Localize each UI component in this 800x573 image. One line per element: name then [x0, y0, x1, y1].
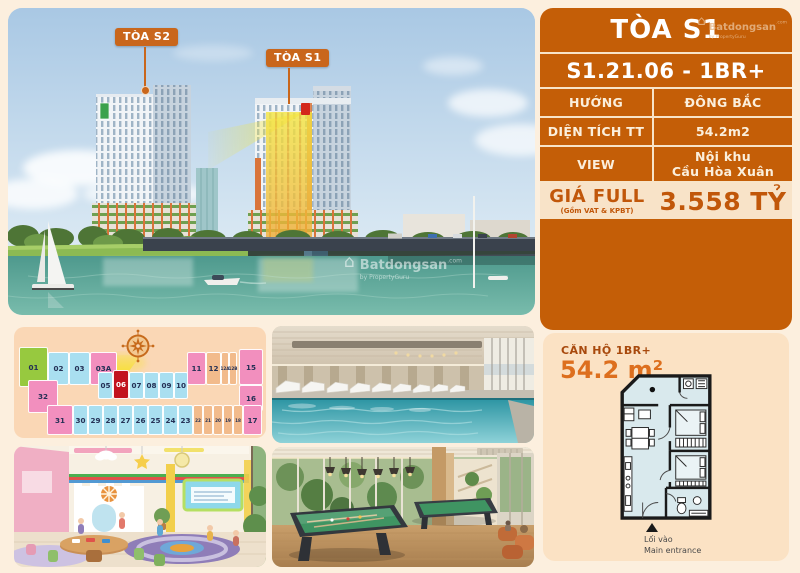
keyplan-unit-10: 10 — [174, 372, 188, 399]
keyplan-unit-09: 09 — [159, 372, 174, 399]
keyplan-unit-12B: 12B — [229, 352, 237, 385]
keyplan-unit-27: 27 — [118, 405, 133, 435]
keyplan-unit-20: 20 — [213, 405, 223, 435]
kids-playroom-photo — [14, 446, 266, 567]
keyplan-unit-06: 06 — [113, 370, 129, 399]
keyplan-unit-19: 19 — [223, 405, 233, 435]
keyplan-unit-24: 24 — [163, 405, 178, 435]
keyplan-unit-12: 12 — [206, 352, 221, 385]
kids-room-scene — [14, 446, 266, 567]
spec-label: VIEW — [540, 147, 654, 181]
spec-row: DIỆN TÍCH TT54.2m2 — [540, 116, 792, 145]
keyplan-unit-28: 28 — [103, 405, 118, 435]
price-label: GIÁ FULL — [549, 188, 645, 206]
listing-flyer: { "brand": {"name": "Batdongsan", "suffi… — [0, 0, 800, 573]
pool-scene — [272, 326, 534, 443]
keyplan-unit-30: 30 — [73, 405, 88, 435]
entrance-label-en: Main entrance — [644, 546, 701, 557]
spec-label: DIỆN TÍCH TT — [540, 118, 654, 145]
keyplan-unit-18: 18 — [233, 405, 243, 435]
keyplan-unit-23: 23 — [178, 405, 193, 435]
keyplan-unit-15: 15 — [239, 349, 263, 385]
keyplan-cells: 01020303A111212A12B153205060708091016313… — [14, 327, 266, 438]
keyplan-unit-07: 07 — [129, 372, 144, 399]
spec-value: ĐÔNG BẮC — [654, 89, 792, 116]
spec-value: 54.2m2 — [654, 118, 792, 145]
price-row: GIÁ FULL (Gồm VAT & KPBT) 3.558 TỶ — [540, 181, 792, 219]
house-icon: ⌂ — [697, 15, 705, 28]
price-value: 3.558 TỶ — [654, 183, 792, 219]
keyplan-unit-21: 21 — [203, 405, 213, 435]
spec-table: HƯỚNGĐÔNG BẮCDIỆN TÍCH TT54.2m2VIEWNội k… — [540, 87, 792, 181]
spec-row: VIEWNội khu Cầu Hòa Xuân — [540, 145, 792, 181]
keyplan-unit-05: 05 — [98, 372, 113, 399]
billiards-scene — [272, 447, 534, 567]
floorplan-drawing — [614, 373, 718, 521]
spec-label: HƯỚNG — [540, 89, 654, 116]
price-sublabel: (Gồm VAT & KPBT) — [561, 208, 634, 215]
keyplan-unit-25: 25 — [148, 405, 163, 435]
keyplan-unit-26: 26 — [133, 405, 148, 435]
highlighted-unit-marker — [301, 103, 310, 115]
tower-s1-label: TÒA S1 — [274, 51, 321, 64]
keyplan-unit-22: 22 — [193, 405, 203, 435]
tower-s2-badge: TÒA S2 — [115, 28, 178, 46]
spec-value: Nội khu Cầu Hòa Xuân — [654, 147, 792, 181]
unit-plan-card: CĂN HỘ 1BR+ 54.2 m² — [543, 333, 789, 561]
main-render-photo: TÒA S2 TÒA S1 ⌂ Batdongsan.com by Proper… — [8, 8, 535, 315]
batdongsan-logo: ⌂ Batdongsan.com by PropertyGuru — [697, 15, 787, 40]
billiards-room-photo — [272, 447, 534, 567]
watermark-byline: by PropertyGuru — [360, 274, 462, 281]
keyplan-unit-17: 17 — [243, 405, 262, 435]
entrance-note: Lối vào Main entrance — [644, 523, 701, 557]
tower-s1-badge: TÒA S1 — [266, 49, 329, 67]
house-icon: ⌂ — [344, 254, 355, 271]
photo-watermark: ⌂ Batdongsan.com by PropertyGuru — [344, 254, 462, 281]
entrance-label-vi: Lối vào — [644, 535, 701, 546]
unit-info-panel: ⌂ Batdongsan.com by PropertyGuru TÒA S1 … — [540, 8, 792, 330]
keyplan-unit-08: 08 — [144, 372, 159, 399]
keyplan-unit-03: 03 — [69, 352, 90, 385]
unit-code: S1.21.06 - 1BR+ — [540, 52, 792, 87]
tower-s2-label: TÒA S2 — [123, 30, 170, 43]
keyplan-unit-29: 29 — [88, 405, 103, 435]
keyplan-unit-31: 31 — [47, 405, 73, 435]
spec-row: HƯỚNGĐÔNG BẮC — [540, 87, 792, 116]
keyplan-unit-11: 11 — [187, 352, 206, 385]
tower-s2-pointer-line — [144, 47, 146, 87]
tower-s1-pointer-line — [288, 68, 290, 104]
tower-s2-pointer-dot — [141, 86, 150, 95]
pool-photo — [272, 326, 534, 443]
watermark-brand: Batdongsan — [360, 258, 447, 273]
entrance-arrow-icon — [646, 523, 658, 532]
floor-keyplan: 01020303A111212A12B153205060708091016313… — [14, 327, 266, 438]
